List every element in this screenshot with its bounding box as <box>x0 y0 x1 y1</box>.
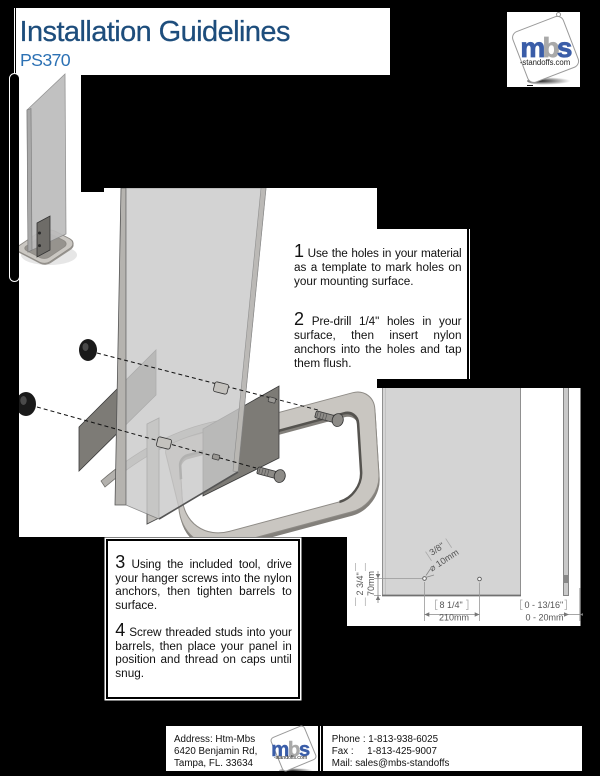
svg-text:0 - 20mm: 0 - 20mm <box>526 613 564 623</box>
svg-text:0 - 13/16": 0 - 13/16" <box>525 600 564 610</box>
svg-text:2 3/4": 2 3/4" <box>355 572 365 595</box>
svg-text:70mm: 70mm <box>366 571 376 596</box>
svg-text:210mm: 210mm <box>439 613 469 623</box>
svg-text:8 1/4": 8 1/4" <box>440 600 463 610</box>
